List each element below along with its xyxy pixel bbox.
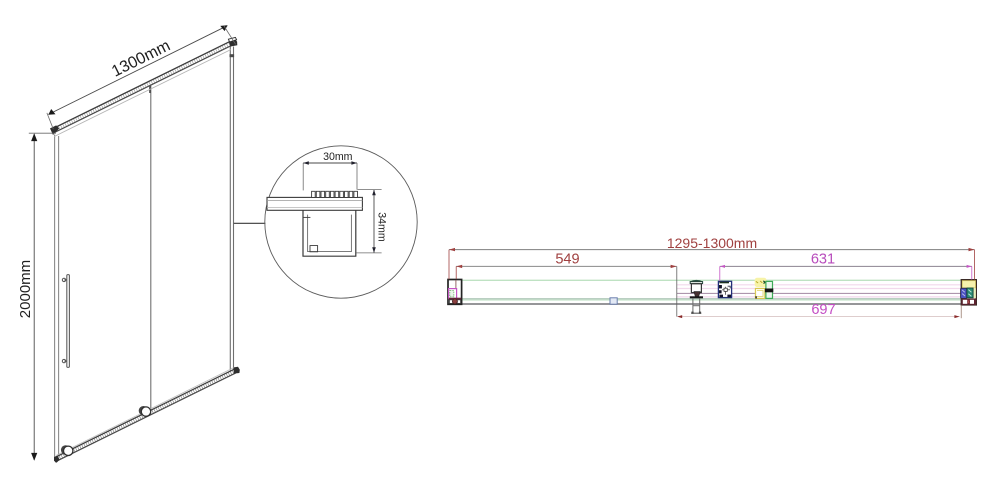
svg-text:549: 549	[555, 252, 579, 268]
svg-text:30mm: 30mm	[323, 151, 353, 163]
svg-text:1295-1300mm: 1295-1300mm	[667, 235, 757, 251]
svg-text:697: 697	[811, 302, 835, 318]
svg-text:631: 631	[811, 252, 835, 268]
svg-text:34mm: 34mm	[375, 212, 387, 242]
svg-text:2000mm: 2000mm	[17, 260, 34, 318]
